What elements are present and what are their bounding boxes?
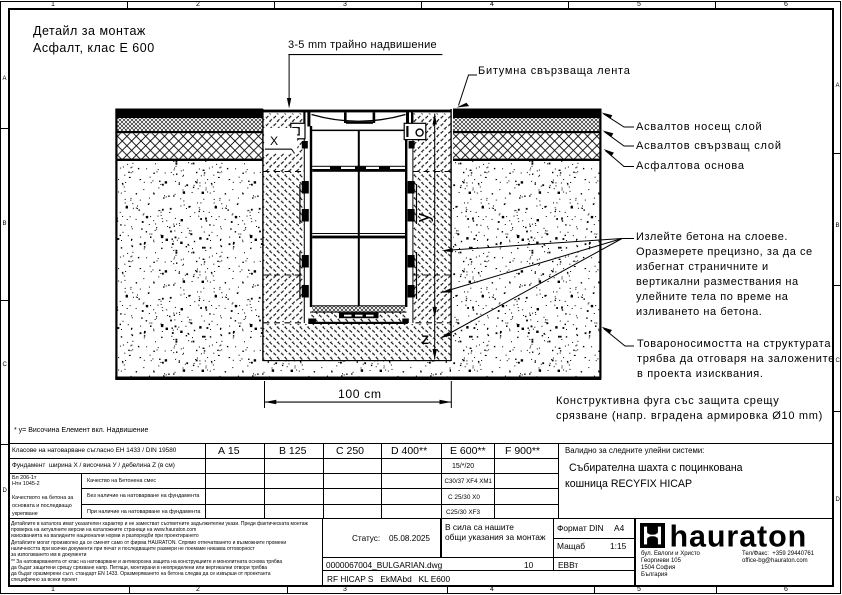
svg-text:hauraton: hauraton xyxy=(670,520,808,554)
